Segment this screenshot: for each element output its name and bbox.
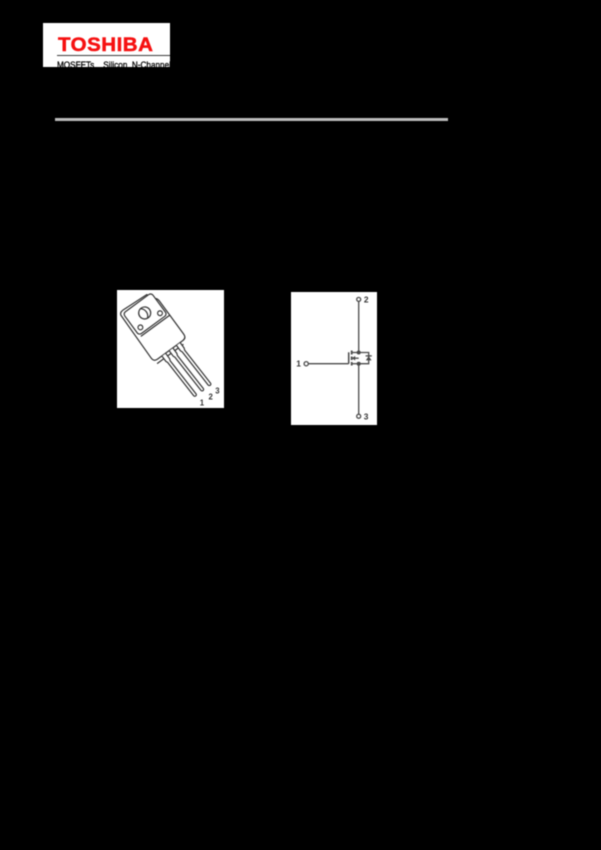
svg-text:1: 1 xyxy=(296,359,301,369)
svg-text:3: 3 xyxy=(364,412,369,422)
svg-text:2: 2 xyxy=(209,393,214,402)
svg-text:3: 3 xyxy=(215,386,220,395)
svg-text:1: 1 xyxy=(200,399,205,408)
svg-text:2: 2 xyxy=(364,294,369,304)
